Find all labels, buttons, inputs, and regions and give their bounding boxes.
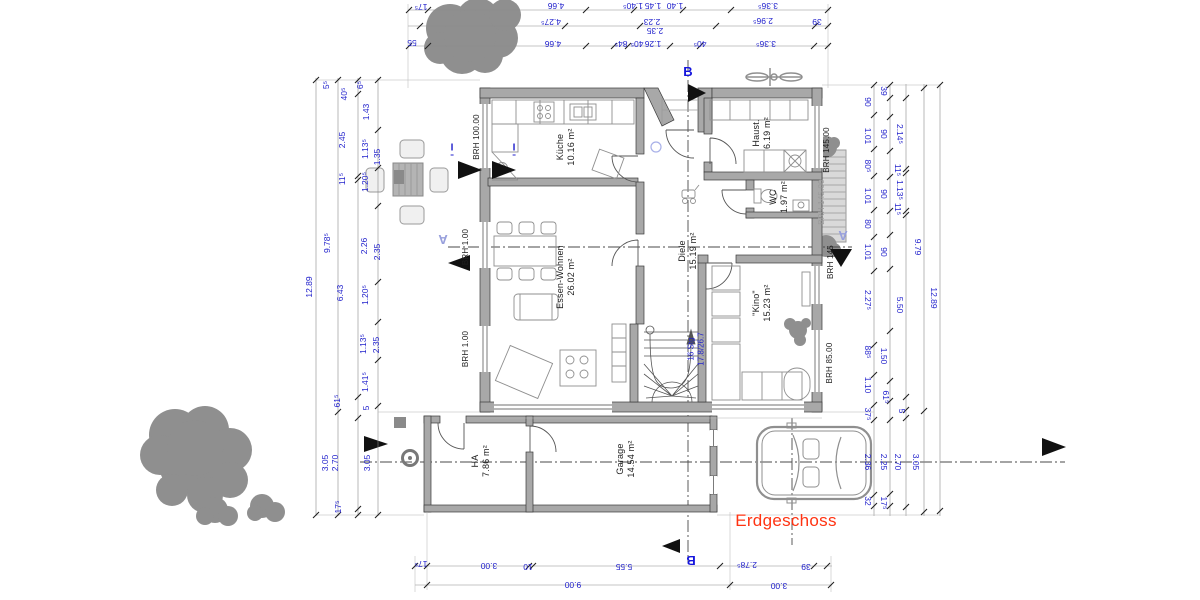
doorbell-symbol <box>651 142 661 152</box>
stairs <box>644 326 698 402</box>
tree-top <box>424 0 521 74</box>
living-door <box>612 240 638 266</box>
wc-door <box>722 190 746 214</box>
driveway-arrow-right <box>1042 438 1066 456</box>
ha-door <box>438 423 464 449</box>
floor-plan-canvas: Küche 10.16 m²Haust. 6.19 m²WC 1.97 m²Di… <box>0 0 1200 600</box>
haust-furniture <box>710 100 808 172</box>
wc-fixtures <box>754 189 809 211</box>
section-a-arrow-right <box>830 249 852 267</box>
section-a-arrow-left <box>448 255 470 271</box>
bicycle-icon <box>746 68 802 86</box>
ha-garage-door <box>530 426 556 452</box>
driveway-arrow-left <box>364 436 388 452</box>
car-icon <box>757 423 871 503</box>
living-furniture <box>494 222 626 398</box>
section-i-arrow-inner <box>492 161 516 179</box>
floor-plan-drawing <box>0 0 1200 600</box>
tree-bottom-left <box>140 406 252 513</box>
haust-door <box>710 138 736 164</box>
kino-door <box>706 263 732 289</box>
section-b-arrow-bottom <box>662 539 680 553</box>
bushes-icon <box>196 494 285 526</box>
entrance-door <box>666 130 694 158</box>
post-icon <box>403 451 418 466</box>
meter-box <box>394 417 406 428</box>
kino-furniture <box>712 266 811 400</box>
kitchen-furniture <box>492 100 634 180</box>
stroller-icon <box>682 185 699 204</box>
section-i-arrow-outer <box>458 161 482 179</box>
floor-title: Erdgeschoss <box>735 511 837 531</box>
windows <box>479 104 823 494</box>
